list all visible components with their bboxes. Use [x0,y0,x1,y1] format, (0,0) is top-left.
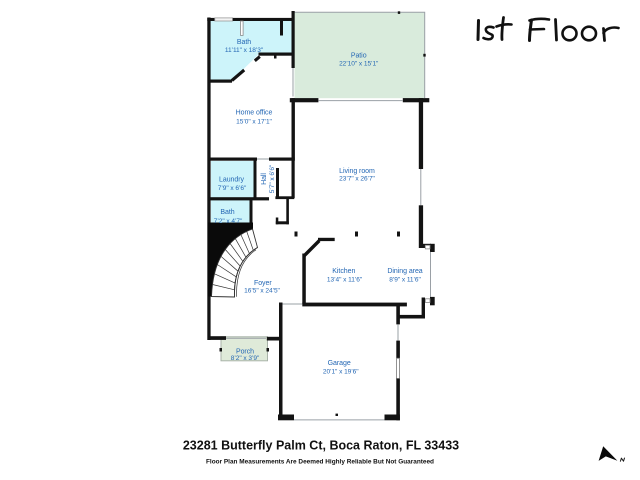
svg-text:8’9" x 11’6": 8’9" x 11’6" [389,277,421,284]
svg-text:Bath: Bath [237,39,251,46]
svg-text:Foyer: Foyer [254,280,272,287]
svg-text:7’9" x 6’6": 7’9" x 6’6" [218,185,247,192]
svg-text:Kitchen: Kitchen [332,268,355,275]
svg-text:16’5" x 24’5": 16’5" x 24’5" [244,287,280,294]
svg-text:15’0" x 17’1": 15’0" x 17’1" [236,119,272,126]
svg-text:Floor Plan Measurements Are De: Floor Plan Measurements Are Deemed Highl… [206,458,434,465]
svg-text:Bath: Bath [220,209,234,216]
svg-text:8’2" x 3’9": 8’2" x 3’9" [231,355,260,362]
svg-text:Hall: Hall [261,173,268,185]
svg-text:22’10" x 15’1": 22’10" x 15’1" [339,61,379,68]
svg-text:23’7" x 26’7": 23’7" x 26’7" [339,176,375,183]
svg-text:13’4" x 11’6": 13’4" x 11’6" [327,277,363,284]
svg-text:Living room: Living room [339,168,375,175]
svg-text:Home office: Home office [236,110,273,117]
svg-text:Garage: Garage [328,360,351,367]
svg-text:20’1" x 19’6": 20’1" x 19’6" [323,369,359,376]
svg-text:11’11" x 18’3": 11’11" x 18’3" [225,47,264,54]
svg-text:Patio: Patio [351,53,367,60]
svg-text:23281 Butterfly Palm Ct, Boca: 23281 Butterfly Palm Ct, Boca Raton, FL … [183,439,459,453]
svg-text:5’7" x 6’6": 5’7" x 6’6" [269,164,276,193]
svg-text:7’2" x 4’7": 7’2" x 4’7" [214,218,243,225]
svg-text:Dining area: Dining area [387,268,422,275]
svg-text:Laundry: Laundry [219,177,244,184]
